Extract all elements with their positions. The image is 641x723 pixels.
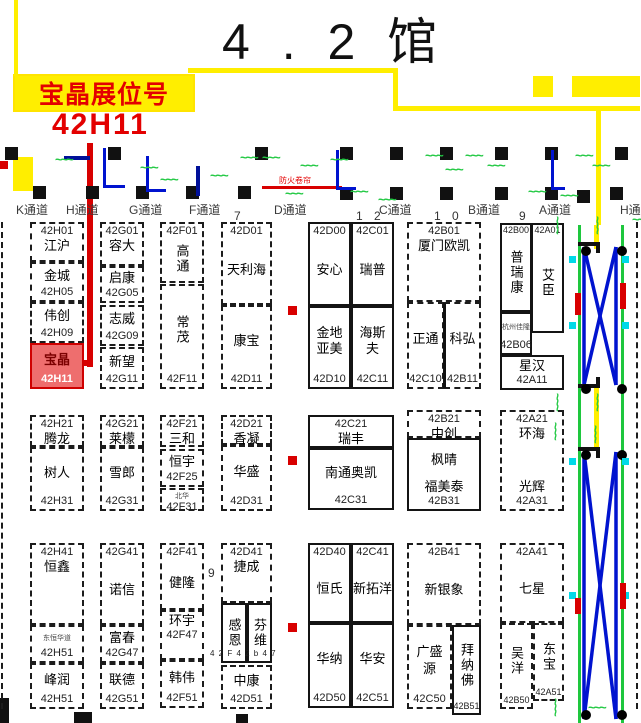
booth-42B50: 吴洋42B50 — [500, 623, 533, 709]
booth-42H21: 42H21腾龙 — [30, 415, 84, 447]
booth-42H51b: 峰润42H51 — [30, 663, 84, 709]
corner-dot-icon — [581, 450, 591, 460]
booth-42B01: 42B01厦门欧凯 — [407, 222, 481, 302]
booth-name: 莱檬 — [109, 431, 135, 447]
booth-42F01: 42F01高通 — [160, 222, 204, 283]
booth-42C51: 华安42C51 — [351, 623, 394, 708]
plant-squiggle-icon: ~~~ — [378, 192, 395, 207]
booth-name: 华安 — [359, 626, 385, 692]
pillar-icon — [5, 147, 18, 160]
booth-id: 42F47 — [166, 629, 197, 642]
plant-squiggle-icon: ~~~ — [588, 700, 605, 715]
booth-id: 42H05 — [41, 286, 73, 299]
bracket — [596, 242, 600, 253]
aisle-label: H通道 — [66, 201, 99, 218]
booth-42C31: 南通奥凯42C31 — [308, 448, 394, 510]
booth-id: 42B50 — [503, 696, 529, 706]
booth-id: 42D41 — [230, 546, 262, 559]
booth-id: 42G11 — [106, 373, 138, 386]
wall-outline — [188, 68, 397, 73]
booth-42G01: 42G01容大 — [100, 222, 144, 266]
booth-id: 42C01 — [356, 225, 388, 238]
booth-id: 42F51 — [166, 692, 197, 705]
booth-id: 42F01 — [166, 225, 197, 238]
booth-name: 诺信 — [109, 559, 135, 622]
plant-squiggle-icon: ~~~ — [210, 168, 227, 183]
pillar-icon — [440, 187, 453, 200]
booth-id: 42C21 — [335, 418, 367, 431]
hydrant-marker-icon — [569, 256, 576, 263]
pillar-icon — [390, 147, 403, 160]
booth-name: 常茂 — [173, 287, 192, 373]
hydrant-marker-icon — [569, 322, 576, 329]
aisle-label: B通道 — [468, 201, 500, 218]
booth-id: 42C41 — [356, 546, 388, 559]
pillar-icon — [238, 186, 251, 199]
pillar-icon — [236, 714, 248, 723]
booth-42A41: 42A41七星 — [500, 543, 564, 623]
red-marker-icon — [620, 583, 626, 609]
booth-id: 42G05 — [105, 287, 138, 300]
plant-squiggle-icon: ~~~ — [425, 148, 442, 163]
booth-name: 峰润 — [44, 666, 70, 693]
booth-id: 42F25 — [166, 471, 197, 484]
booth-42B00: 42B00普瑞康 — [500, 223, 532, 312]
pillar-icon — [33, 186, 46, 199]
booth-42G21: 42G21莱檬 — [100, 415, 144, 447]
aisle-label: 1 0 — [434, 209, 463, 223]
bracket — [596, 377, 600, 388]
booth-name: 容大 — [109, 238, 135, 254]
booth-42F11: 常茂42F11 — [160, 284, 204, 389]
booth-name: 联德 — [109, 666, 135, 693]
map-annotation: 4 2 F 4 2 b 4 7 — [210, 649, 277, 658]
booth-name: 海斯 — [359, 325, 385, 341]
aisle-label: G通道 — [129, 201, 162, 218]
booth-name: 亚美 — [316, 341, 342, 357]
booth-name: 捷成 — [233, 559, 259, 575]
door-swing-icon — [551, 150, 565, 190]
booth-id: 42A41 — [516, 546, 548, 559]
fire-shutter-label: 防火卷帘 — [279, 175, 311, 186]
booth-name: 华纳 — [316, 626, 342, 692]
plant-squiggle-icon: ~~~ — [300, 158, 317, 173]
booth-id: 42B00 — [503, 226, 529, 236]
booth-id: 42G09 — [105, 330, 138, 343]
booth-name: 东宝 — [539, 626, 558, 688]
booth-42H09: 伟创42H09 — [30, 302, 84, 343]
corner-dot-icon — [617, 710, 627, 720]
booth-id: 42F21 — [166, 418, 197, 431]
hydrant-marker-icon — [569, 458, 576, 465]
booth-id: 42B51 — [453, 702, 479, 712]
plant-squiggle-icon: ~~~ — [550, 393, 565, 410]
plant-squiggle-icon: ~~~ — [588, 425, 603, 442]
booth-name: 华盛 — [233, 448, 259, 495]
booth-name: 吴洋 — [507, 626, 526, 696]
booth-42D31: 华盛42D31 — [221, 445, 272, 511]
booth-id: 42D50 — [313, 692, 345, 705]
aisle-marker-icon — [288, 623, 297, 632]
booth-42B11: 科弘42B11 — [444, 302, 481, 389]
bracket — [596, 447, 600, 458]
booth-name: 东恒华道 — [43, 628, 71, 647]
booth-42G31: 雪郎42G31 — [100, 447, 144, 511]
pillar-icon — [74, 712, 92, 723]
corner-dot-icon — [617, 384, 627, 394]
booth-42D40: 42D40恒氏 — [308, 543, 351, 623]
booth-name: 瑞普 — [359, 238, 385, 303]
booth-id: 42C51 — [356, 692, 388, 705]
pillar-icon — [577, 190, 590, 203]
booth-42F31: 北华42F31 — [160, 488, 204, 511]
booth-42B06: 杭州佳隆42B06 — [500, 312, 532, 355]
booth-42C01: 42C01瑞普 — [351, 222, 394, 306]
booth-42D11: 康宝42D11 — [221, 305, 272, 389]
booth-42B51: 拜纳佛42B51 — [452, 625, 481, 715]
booth-id: 42F31 — [166, 501, 197, 514]
booth-id: 42G47 — [105, 647, 138, 660]
floorplan-map: 4 . 2 馆 宝晶展位号 42H11 防火卷帘 K通道H通道G通道F通道7D通… — [0, 0, 641, 723]
booth-name: 韩伟 — [169, 663, 195, 692]
booth-name: 高通 — [173, 238, 192, 280]
booth-id: 42D11 — [231, 373, 263, 386]
booth-name: 恒鑫 — [44, 559, 70, 575]
aisle-marker-icon — [288, 456, 297, 465]
hall-wall — [1, 222, 5, 709]
booth-id: 42D40 — [313, 546, 345, 559]
booth-42C21: 42C21瑞丰 — [308, 415, 394, 448]
booth-42F41: 42F41健隆 — [160, 543, 204, 610]
red-marker-icon — [620, 283, 626, 309]
booth-id: 42G41 — [105, 546, 138, 559]
plant-squiggle-icon: ~~~ — [285, 186, 302, 201]
highlight-booth-code: 42H11 — [52, 108, 149, 142]
booth-id: 42B01 — [428, 225, 460, 238]
booth-name: 南通奥凯 — [325, 451, 377, 494]
booth-name: 恒氏 — [316, 559, 342, 620]
booth-name: 福美泰 — [424, 479, 463, 495]
red-marker-icon — [575, 293, 581, 315]
booth-id: 42C11 — [357, 373, 389, 386]
booth-42H11: 宝晶42H11 — [30, 343, 84, 389]
booth-42D00: 42D00安心 — [308, 222, 351, 306]
booth-id: 42G31 — [105, 495, 138, 508]
booth-42D01: 42D01天利海 — [221, 222, 272, 305]
hydrant-marker-icon — [622, 322, 629, 329]
booth-divider — [443, 303, 446, 388]
booth-id: 42F41 — [166, 546, 197, 559]
wall-outline — [393, 68, 398, 111]
booth-name: 星汉 — [519, 358, 545, 374]
plant-squiggle-icon: ~~~ — [240, 150, 257, 165]
booth-name: 三和 — [169, 431, 195, 447]
booth-id: 42H41 — [41, 546, 73, 559]
booth-id: 42F11 — [167, 373, 197, 386]
booth-id: 42H01 — [41, 225, 73, 238]
booth-id: 42H51 — [41, 647, 73, 660]
booth-name: 启康 — [109, 269, 135, 287]
booth-42A51: 东宝42A51 — [533, 623, 564, 701]
booth-name: 安心 — [316, 238, 342, 303]
pillar-icon — [610, 187, 623, 200]
booth-42D50: 华纳42D50 — [308, 623, 351, 708]
booth-42G05: 启康42G05 — [100, 266, 144, 303]
door-frame — [196, 166, 200, 196]
wall-outline — [393, 106, 640, 111]
plant-squiggle-icon: ~~~ — [487, 158, 504, 173]
booth-42G11: 新望42G11 — [100, 347, 144, 389]
booth-42H41: 42H41恒鑫 — [30, 543, 84, 625]
booth-42H31: 树人42H31 — [30, 447, 84, 511]
booth-name: 新银象 — [424, 559, 463, 622]
booth-42C10: 正通42C10 — [407, 302, 444, 389]
booth-name: 正通 — [412, 305, 438, 373]
plant-squiggle-icon: ~~~ — [550, 216, 565, 233]
booth-name: 七星 — [519, 559, 545, 620]
booth-name: 艾臣 — [538, 236, 557, 330]
red-marker-icon — [0, 161, 8, 169]
leader-line-vertical — [87, 143, 93, 367]
booth-name: 天利海 — [227, 238, 266, 302]
booth-42H01: 42H01江沪 — [30, 222, 84, 262]
booth-id: 42H51 — [41, 693, 73, 706]
booth-42G47: 富春42G47 — [100, 625, 144, 663]
booth-id: 42B06 — [500, 339, 532, 352]
booth-name: 健隆 — [169, 559, 195, 607]
booth-name: 杭州佳隆 — [502, 315, 530, 339]
booth-name: 北华 — [175, 491, 189, 501]
booth-42F25: 恒宇42F25 — [160, 449, 204, 487]
booth-id: 42D01 — [230, 225, 262, 238]
aisle-label: 9 — [519, 209, 530, 223]
booth-id: 42D51 — [230, 693, 262, 706]
hydrant-marker-icon — [622, 256, 629, 263]
aisle-marker-icon — [288, 306, 297, 315]
plant-squiggle-icon: ~~~ — [548, 422, 563, 439]
plant-squiggle-icon: ~~~ — [560, 188, 577, 203]
booth-42A01: 42A01艾臣 — [531, 223, 564, 333]
pillar-icon — [615, 147, 628, 160]
booth-id: 42C50 — [413, 693, 445, 706]
booth-name: 科弘 — [449, 305, 475, 373]
plant-squiggle-icon: ~~~ — [632, 212, 641, 227]
booth-name: 广盛 — [416, 644, 442, 660]
booth-id: 42A21 — [516, 413, 548, 426]
booth-id: 42D31 — [230, 495, 262, 508]
booth-id: 42B41 — [428, 546, 460, 559]
booth-name: 康宝 — [233, 308, 259, 373]
booth-42D10: 金地亚美42D10 — [308, 306, 351, 389]
aisle-label: D通道 — [274, 201, 307, 218]
booth-name: 新望 — [109, 350, 135, 373]
map-annotation: 9 — [208, 566, 215, 580]
booth-42C41: 42C41新拓洋 — [351, 543, 394, 623]
booth-name: 雪郎 — [109, 450, 135, 495]
booth-42D21: 42D21香凝 — [221, 415, 272, 445]
booth-id: 42G21 — [105, 418, 138, 431]
booth-name: 金地 — [316, 325, 342, 341]
booth-id: 42D00 — [313, 225, 345, 238]
booth-42H05: 金城42H05 — [30, 262, 84, 302]
plant-squiggle-icon: ~~~ — [55, 152, 72, 167]
booth-name: 伟创 — [44, 305, 70, 327]
pillar-icon — [86, 186, 99, 199]
booth-name: 厦门欧凯 — [418, 238, 470, 254]
aisle-label: K通道 — [16, 201, 48, 218]
plant-squiggle-icon: ~~~ — [528, 184, 545, 199]
wall-outline — [14, 0, 18, 76]
booth-42G41: 42G41诺信 — [100, 543, 144, 625]
red-marker-icon — [575, 598, 581, 614]
plant-squiggle-icon: ~~~ — [140, 160, 157, 175]
booth-42F51: 韩伟42F51 — [160, 660, 204, 708]
booth-42C11: 海斯夫42C11 — [351, 306, 394, 389]
booth-name: 光辉 — [519, 479, 545, 495]
plant-squiggle-icon: ~~~ — [592, 158, 609, 173]
booth-id: 42C10 — [409, 373, 441, 386]
plant-squiggle-icon: ~~~ — [465, 148, 482, 163]
corner-dot-icon — [581, 246, 591, 256]
booth-name: 腾龙 — [44, 431, 70, 447]
escalator-cross-icon — [576, 243, 624, 389]
booth-42B31: 枫晴福美泰42B31 — [407, 438, 481, 511]
booth-id: 42B31 — [428, 495, 460, 508]
plant-squiggle-icon: ~~~ — [350, 184, 367, 199]
hall-wall — [636, 222, 640, 709]
booth-42H51a: 东恒华道42H51 — [30, 625, 84, 663]
wall-outline — [533, 76, 553, 97]
booth-42B41: 42B41新银象 — [407, 543, 481, 625]
hall-title: 4 . 2 馆 — [222, 2, 446, 74]
booth-name: 瑞丰 — [338, 431, 364, 447]
booth-id: 42D21 — [230, 418, 262, 431]
booth-42B21: 42B21中创 — [407, 410, 481, 438]
plant-squiggle-icon: ~~~ — [330, 152, 347, 167]
booth-name: 中康 — [233, 668, 259, 693]
booth-name: 拜纳佛 — [457, 628, 476, 702]
booth-id: 42G51 — [105, 693, 138, 706]
booth-42A11: 星汉42A11 — [500, 355, 564, 390]
booth-name: 环海 — [519, 426, 545, 442]
booth-id: 42H09 — [41, 327, 73, 340]
booth-id: 42H31 — [41, 495, 73, 508]
door-swing-icon — [103, 148, 125, 188]
aisle-label: F通道 — [189, 201, 220, 218]
booth-name: 富春 — [109, 628, 135, 647]
booth-id: 42A51 — [535, 688, 561, 698]
booth-id: 42A11 — [517, 374, 548, 387]
booth-name: 志威 — [109, 308, 135, 330]
wall-outline — [13, 157, 33, 191]
booth-id: 42B21 — [428, 413, 460, 426]
plant-squiggle-icon: ~~~ — [445, 162, 462, 177]
highlight-banner: 宝晶展位号 — [13, 74, 195, 112]
booth-name: 夫 — [366, 341, 379, 357]
booth-name: 江沪 — [44, 238, 70, 254]
booth-id: 42A31 — [516, 495, 548, 508]
booth-name: 环宇 — [169, 613, 195, 629]
plant-squiggle-icon: ~~~ — [590, 393, 605, 410]
booth-42C50: 广盛源42C50 — [407, 625, 452, 709]
highlight-banner-text: 宝晶展位号 — [39, 75, 169, 111]
booth-id: 42H21 — [41, 418, 73, 431]
booth-id: 42D10 — [313, 373, 345, 386]
pillar-icon — [495, 187, 508, 200]
booth-name: 源 — [423, 661, 436, 677]
booth-name: 树人 — [44, 450, 70, 495]
hydrant-marker-icon — [622, 458, 629, 465]
plant-squiggle-icon: ~~~ — [575, 148, 592, 163]
booth-id: 42G01 — [105, 225, 138, 238]
booth-42D41: 42D41捷成 — [221, 543, 272, 603]
fire-shutter-line — [262, 186, 342, 189]
booth-42F21: 42F21三和 — [160, 415, 204, 447]
booth-name: 枫晴 — [431, 452, 457, 468]
booth-id: 42H11 — [41, 373, 73, 386]
booth-42F47: 环宇42F47 — [160, 610, 204, 660]
booth-name: 金城 — [44, 265, 70, 286]
booth-name: 宝晶 — [44, 346, 70, 373]
booth-42G51: 联德42G51 — [100, 663, 144, 709]
booth-42G09: 志威42G09 — [100, 305, 144, 346]
booth-name: 恒宇 — [169, 452, 195, 471]
plant-squiggle-icon: ~~~ — [590, 216, 605, 233]
booth-id: 42B11 — [447, 373, 478, 386]
booth-name: 普瑞康 — [507, 236, 526, 309]
aisle-label: 7 — [234, 209, 245, 223]
booth-name: 新拓洋 — [353, 559, 392, 620]
booth-id: 42C31 — [335, 494, 367, 507]
wall-outline — [572, 76, 640, 97]
corner-dot-icon — [617, 246, 627, 256]
booth-42D51: 中康42D51 — [221, 665, 272, 709]
plant-squiggle-icon: ~~~ — [160, 172, 177, 187]
plant-squiggle-icon: ~~~ — [548, 698, 563, 715]
escalator-cross-icon — [576, 448, 624, 723]
plant-squiggle-icon: ~~~ — [262, 150, 279, 165]
